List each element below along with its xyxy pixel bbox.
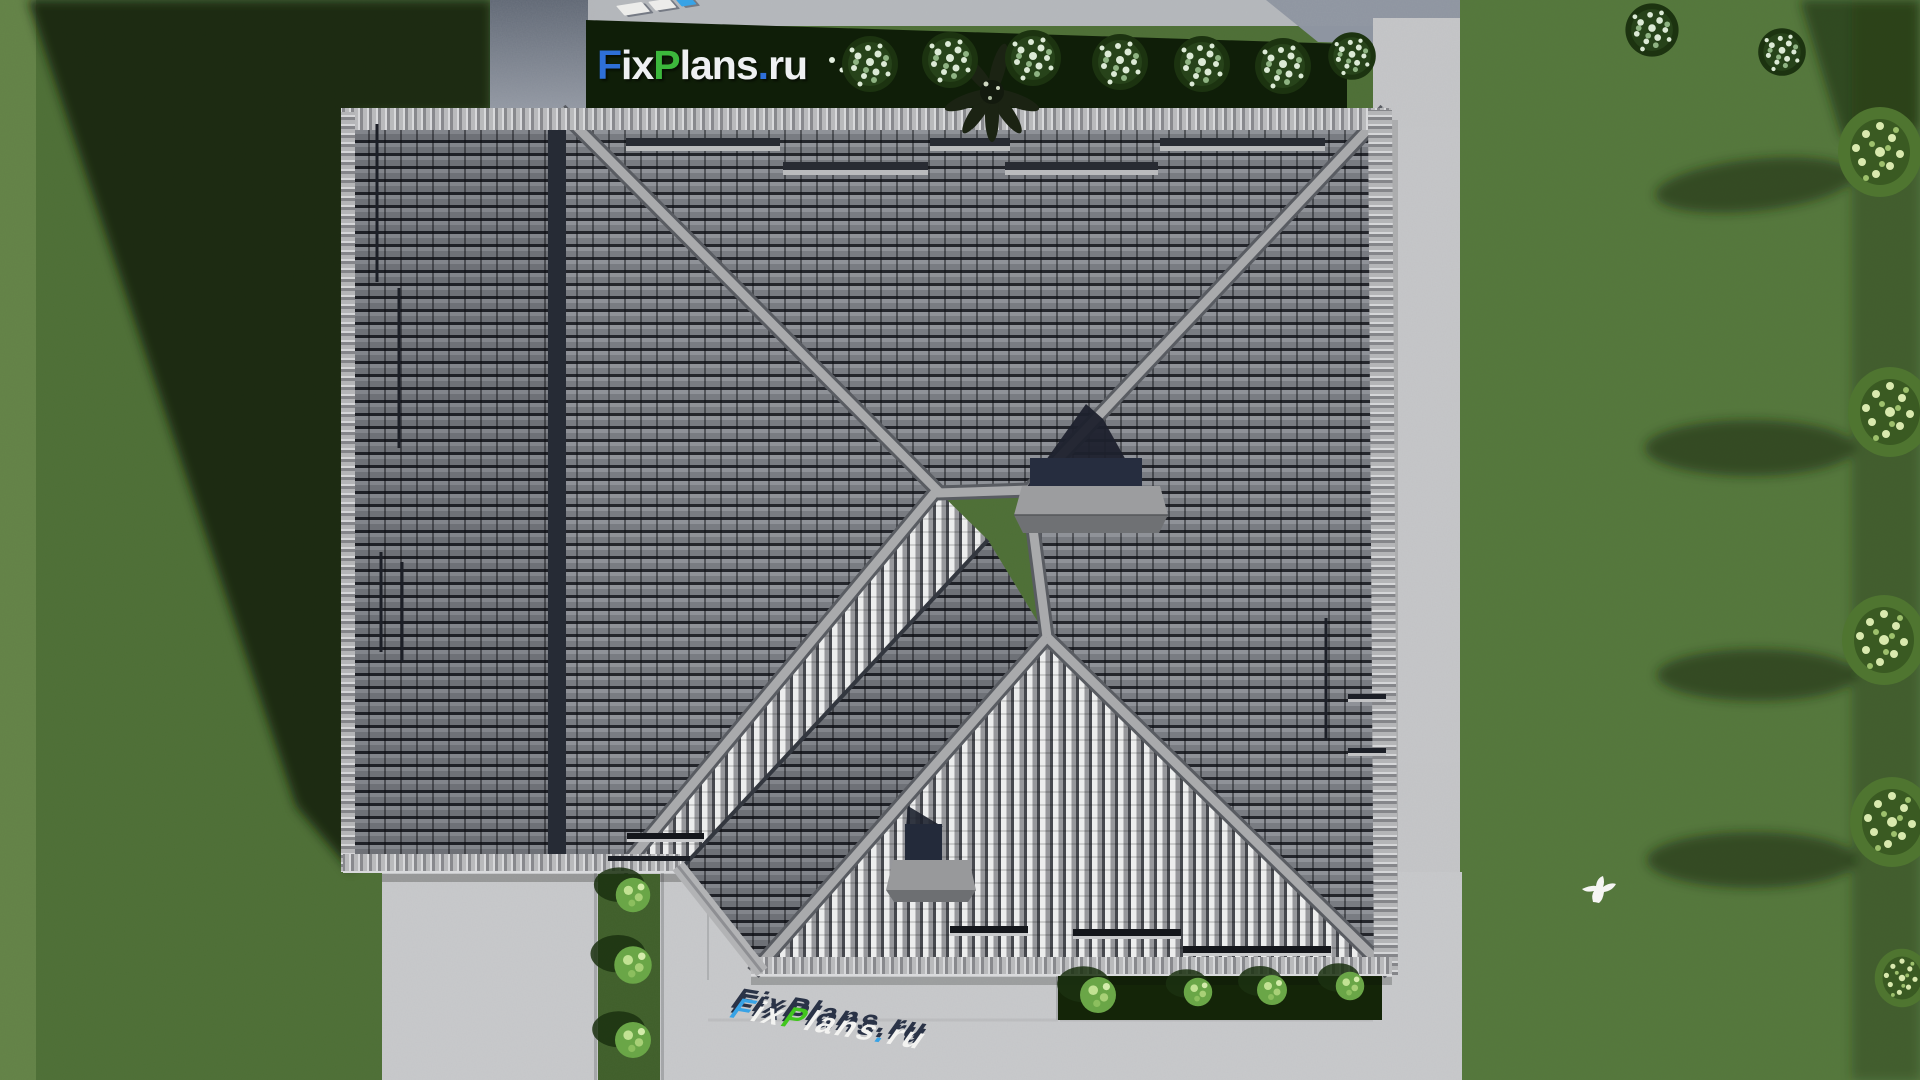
watermark-block: [676, 0, 697, 7]
watermark-block: [616, 2, 650, 16]
logo-segment: lans: [680, 42, 758, 88]
eave-left: [341, 112, 355, 872]
logo-segment: .: [758, 42, 768, 88]
fixplans-logo: FixPlans.ru: [597, 42, 807, 89]
planting-strip-bushes: [591, 867, 661, 1080]
roof-left-section: [345, 114, 548, 872]
aerial-roof-plan-scene: FixPlans.ru FixPlans.ru: [0, 0, 1920, 1080]
logo-segment: F: [597, 42, 621, 88]
watermark-block: [648, 0, 676, 11]
logo-segment: ru: [768, 42, 807, 88]
roof-valley: [548, 114, 566, 872]
eave-top: [341, 108, 1391, 130]
site-plan-rendering: [0, 0, 1920, 1080]
logo-segment: P: [653, 42, 679, 88]
logo-segment: ix: [621, 42, 653, 88]
roof: [341, 108, 1398, 975]
